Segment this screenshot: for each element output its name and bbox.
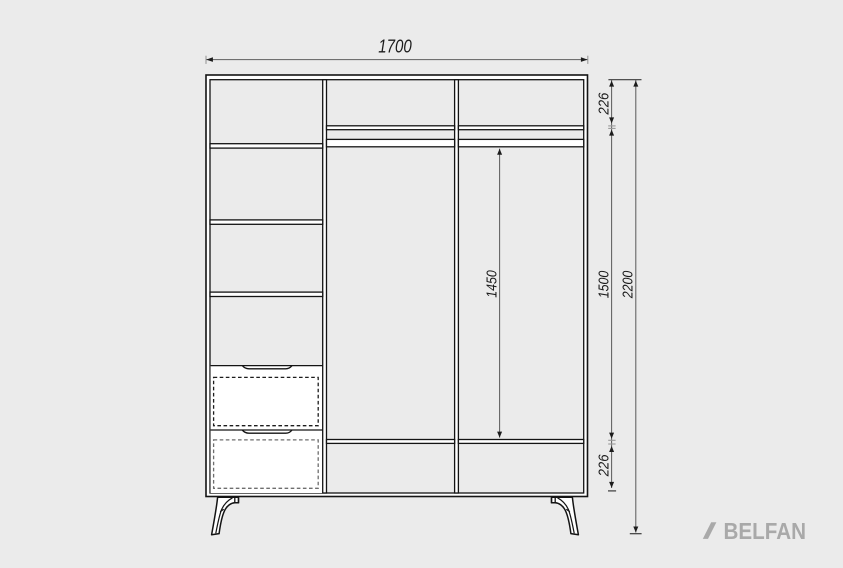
svg-text:2200: 2200	[621, 271, 637, 299]
svg-text:226: 226	[596, 92, 612, 116]
svg-text:1700: 1700	[378, 36, 412, 57]
svg-text:226: 226	[596, 454, 612, 478]
svg-text:1450: 1450	[485, 270, 501, 298]
svg-text:BELFAN: BELFAN	[724, 518, 807, 544]
svg-text:1500: 1500	[596, 271, 612, 299]
